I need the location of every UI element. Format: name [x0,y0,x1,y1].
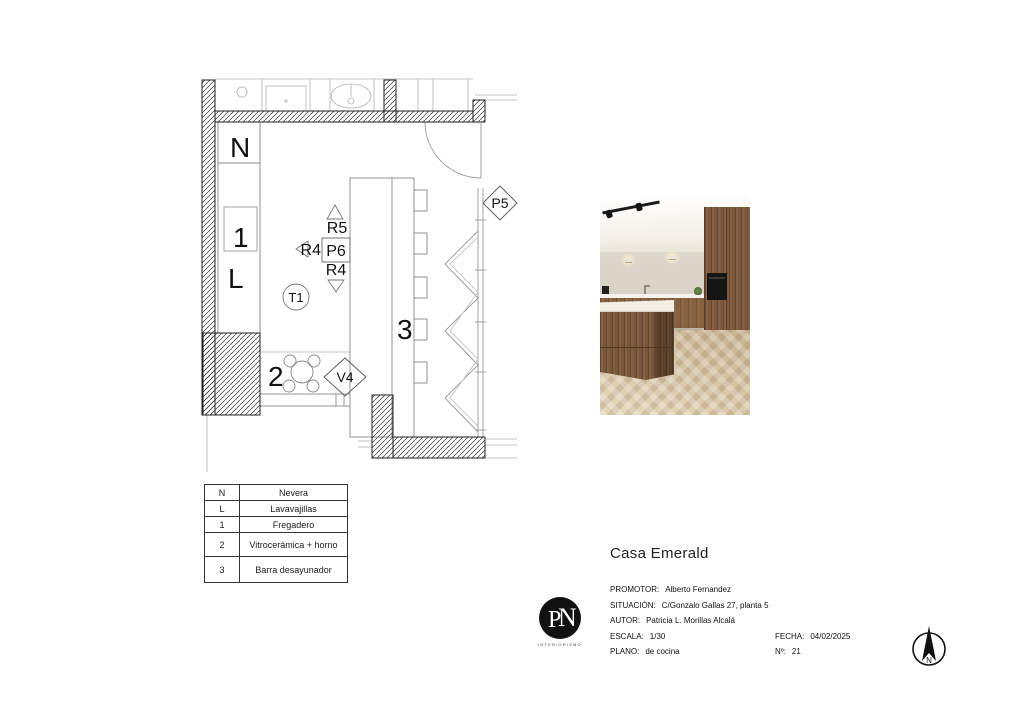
legend-table: N Nevera L Lavavajillas 1 Fregadero 2 Vi… [204,484,348,583]
legend-row: L Lavavajillas [205,500,347,516]
island-body [600,312,674,380]
plant [694,287,702,295]
legend-key: L [205,501,240,516]
autor-label: AUTOR: [610,616,640,625]
hob-symbol [283,355,320,392]
legend-key: 2 [205,533,240,556]
north-arrow-icon: N [903,623,955,675]
autor-value: Patricia L. Morillas Alcalá [646,616,735,625]
plano-label: PLANO: [610,647,639,656]
logo-letter-n: N [558,603,577,632]
cabinet-divider [726,207,727,333]
autor-row: AUTOR: Patricia L. Morillas Alcalá [610,613,910,629]
label-sink: 1 [233,222,249,253]
stool [414,362,427,383]
stool [414,233,427,254]
title-block: Casa Emerald PROMOTOR: Alberto Fernandez… [610,545,910,660]
plano-numero-row: PLANO: de cocina Nº: 21 [610,644,910,660]
escala-value: 1/30 [650,632,666,641]
legend-value: Fregadero [240,517,347,532]
built-in-oven [707,273,727,300]
kitchen-island [600,300,674,380]
wall-lamp [664,251,680,265]
legend-value: Nevera [240,485,347,500]
faucet [644,285,646,294]
escala-label: ESCALA: [610,632,644,641]
label-p5: P5 [491,195,508,211]
adjacent-fixture [266,86,306,111]
legend-key: 1 [205,517,240,532]
island-drawer-line [600,347,674,348]
escala-fecha-row: ESCALA: 1/30 FECHA: 04/02/2025 [610,629,910,645]
legend-row: 1 Fregadero [205,516,347,532]
label-hob: 2 [268,361,284,392]
legend-value: Vitrocerámica + horno [240,533,347,556]
plano-value: de cocina [645,647,679,656]
adjacent-light-icon [237,87,247,97]
situacion-row: SITUACIÓN: C/Gonzalo Gallas 27, planta 5 [610,598,910,614]
counter-appliance [602,286,609,294]
label-v4: V4 [336,369,353,385]
fecha-label: FECHA: [775,632,804,641]
situacion-value: C/Gonzalo Gallas 27, planta 5 [662,601,769,610]
numero-label: Nº: [775,647,786,656]
label-fridge: N [230,132,250,163]
promotor-row: PROMOTOR: Alberto Fernandez [610,582,910,598]
stool [414,190,427,211]
legend-key: N [205,485,240,500]
project-title: Casa Emerald [610,545,910,562]
label-r4-left: R4 [301,242,322,259]
label-r4-bottom: R4 [326,262,347,279]
label-dishwasher: L [228,263,244,294]
situacion-label: SITUACIÓN: [610,601,656,610]
legend-row: 3 Barra desayunador [205,556,347,582]
kitchen-floor-plan: N 1 L 2 3 R5 R4 P6 R4 T1 V4 P5 [190,72,525,475]
label-r5: R5 [327,220,348,237]
legend-row: N Nevera [205,485,347,500]
logo-subtitle: INTERIORISMO [538,642,582,647]
label-bar: 3 [397,314,413,345]
wall-lamp [620,254,636,268]
door-swing [425,122,481,178]
legend-value: Lavavajillas [240,501,347,516]
photo-tall-cabinets [704,207,750,333]
stool [414,319,427,340]
legend-row: 2 Vitrocerámica + horno [205,532,347,556]
numero-value: 21 [792,647,801,656]
arrow-up-icon [327,205,343,219]
window-folding-door [445,188,486,437]
promotor-label: PROMOTOR: [610,585,659,594]
arrow-down-icon [328,280,344,292]
promotor-value: Alberto Fernandez [665,585,731,594]
north-label: N [926,656,932,665]
fecha-value: 04/02/2025 [810,632,850,641]
kitchen-photo [600,190,750,415]
stool [414,277,427,298]
label-p6: P6 [326,243,346,260]
studio-logo: P N INTERIORISMO [538,596,586,650]
label-t1: T1 [288,290,303,305]
legend-value: Barra desayunador [240,557,347,582]
legend-key: 3 [205,557,240,582]
